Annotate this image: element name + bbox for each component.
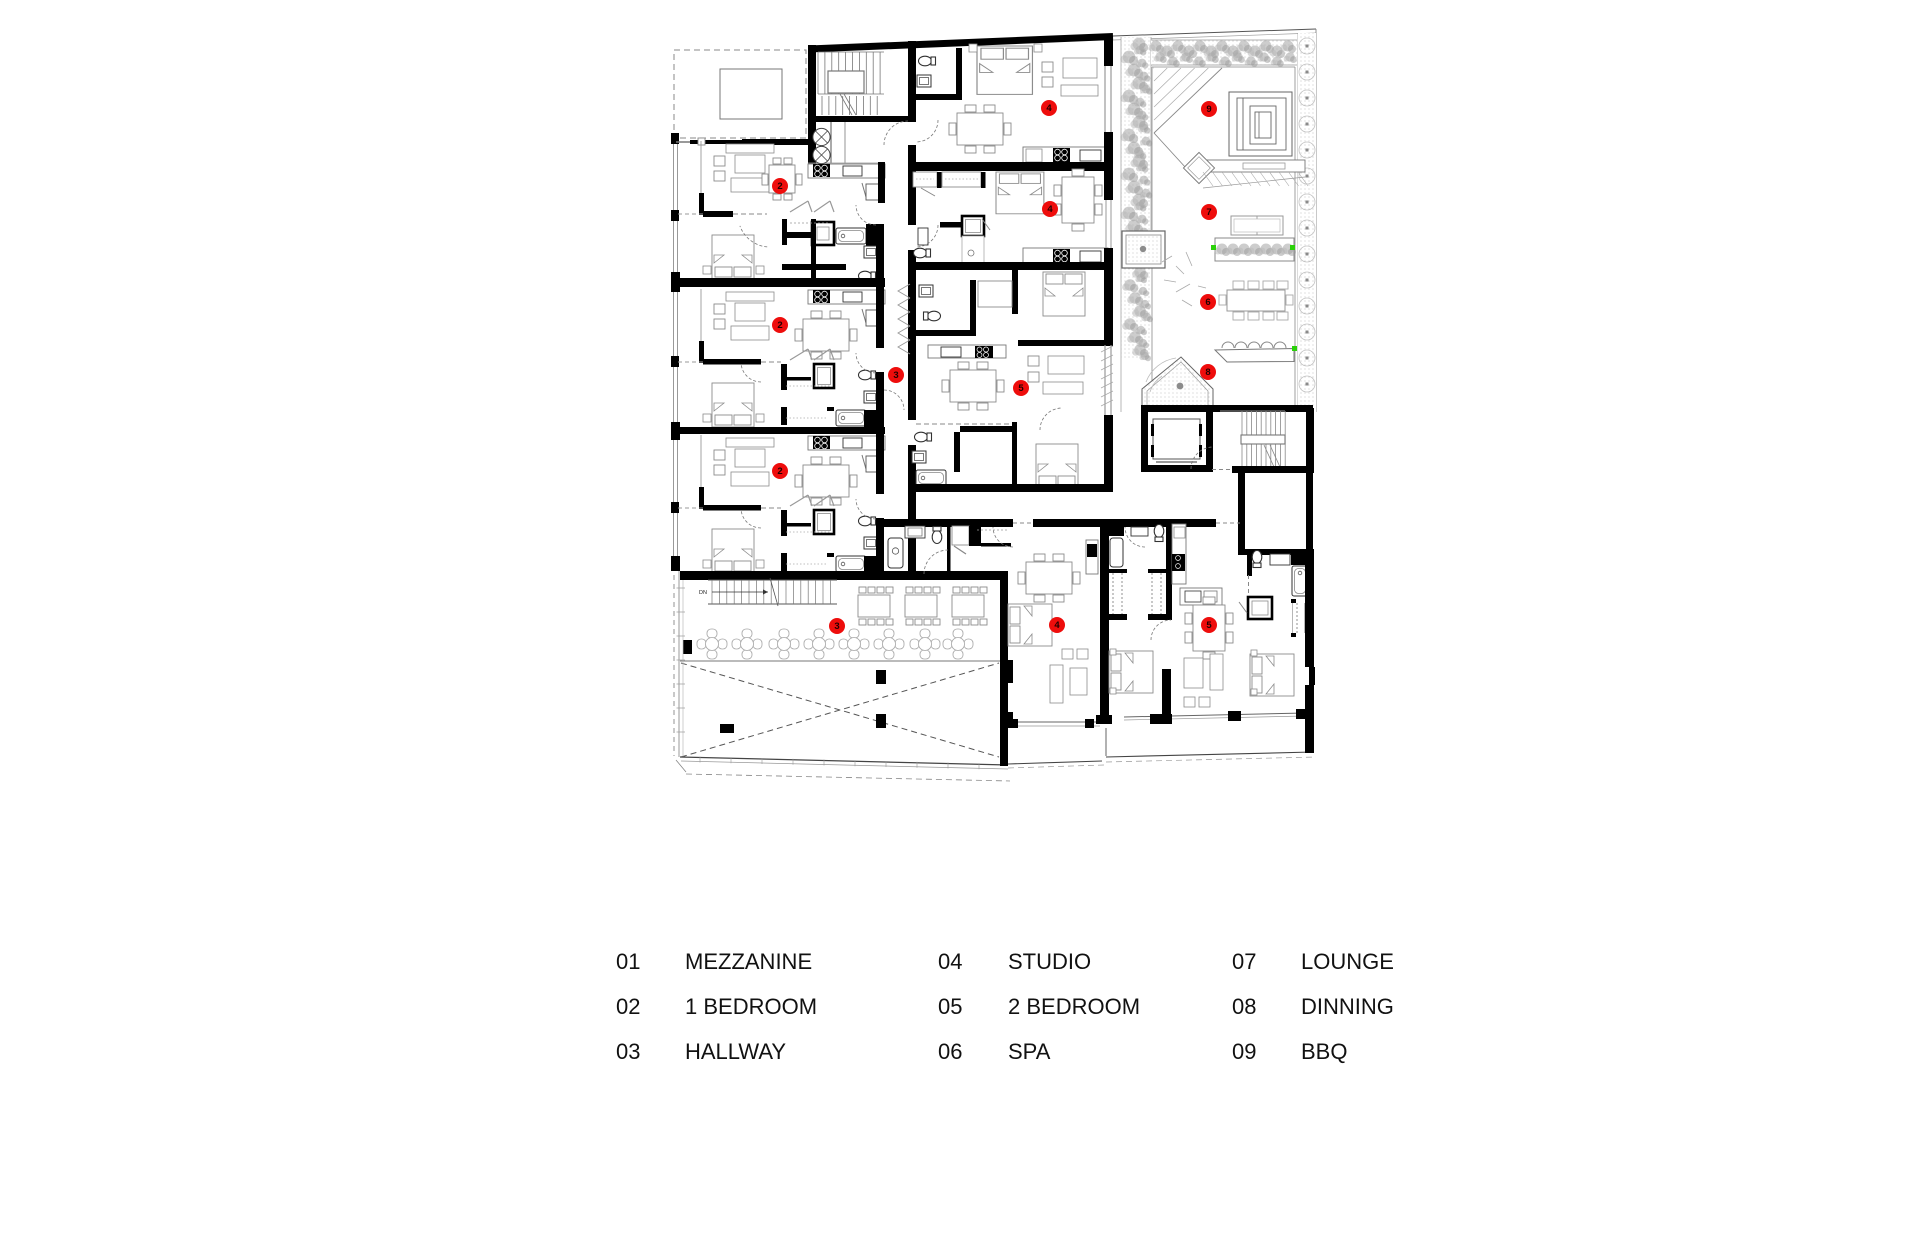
svg-text:STUDIO: STUDIO — [1008, 949, 1091, 974]
svg-text:LOUNGE: LOUNGE — [1301, 949, 1394, 974]
svg-text:07: 07 — [1232, 949, 1256, 974]
svg-text:06: 06 — [938, 1039, 962, 1064]
svg-text:2 BEDROOM: 2 BEDROOM — [1008, 994, 1140, 1019]
svg-text:9: 9 — [1206, 104, 1211, 115]
svg-text:04: 04 — [938, 949, 962, 974]
svg-text:5: 5 — [1018, 383, 1024, 394]
svg-text:3: 3 — [834, 621, 839, 632]
svg-text:HALLWAY: HALLWAY — [685, 1039, 786, 1064]
svg-text:8: 8 — [1205, 367, 1210, 378]
svg-text:05: 05 — [938, 994, 962, 1019]
svg-text:1 BEDROOM: 1 BEDROOM — [685, 994, 817, 1019]
svg-text:5: 5 — [1206, 620, 1212, 631]
svg-text:08: 08 — [1232, 994, 1256, 1019]
svg-text:09: 09 — [1232, 1039, 1256, 1064]
svg-text:03: 03 — [616, 1039, 640, 1064]
svg-text:01: 01 — [616, 949, 640, 974]
svg-text:SPA: SPA — [1008, 1039, 1051, 1064]
svg-text:6: 6 — [1205, 297, 1210, 308]
svg-text:2: 2 — [777, 320, 782, 331]
svg-text:DINNING: DINNING — [1301, 994, 1394, 1019]
svg-text:2: 2 — [777, 181, 782, 192]
svg-text:4: 4 — [1046, 103, 1052, 114]
svg-text:MEZZANINE: MEZZANINE — [685, 949, 812, 974]
svg-text:DN: DN — [699, 590, 707, 596]
svg-text:4: 4 — [1047, 204, 1053, 215]
svg-text:2: 2 — [777, 466, 782, 477]
svg-text:02: 02 — [616, 994, 640, 1019]
svg-text:BBQ: BBQ — [1301, 1039, 1347, 1064]
svg-text:3: 3 — [893, 370, 898, 381]
svg-text:4: 4 — [1054, 620, 1060, 631]
svg-text:7: 7 — [1206, 207, 1211, 218]
